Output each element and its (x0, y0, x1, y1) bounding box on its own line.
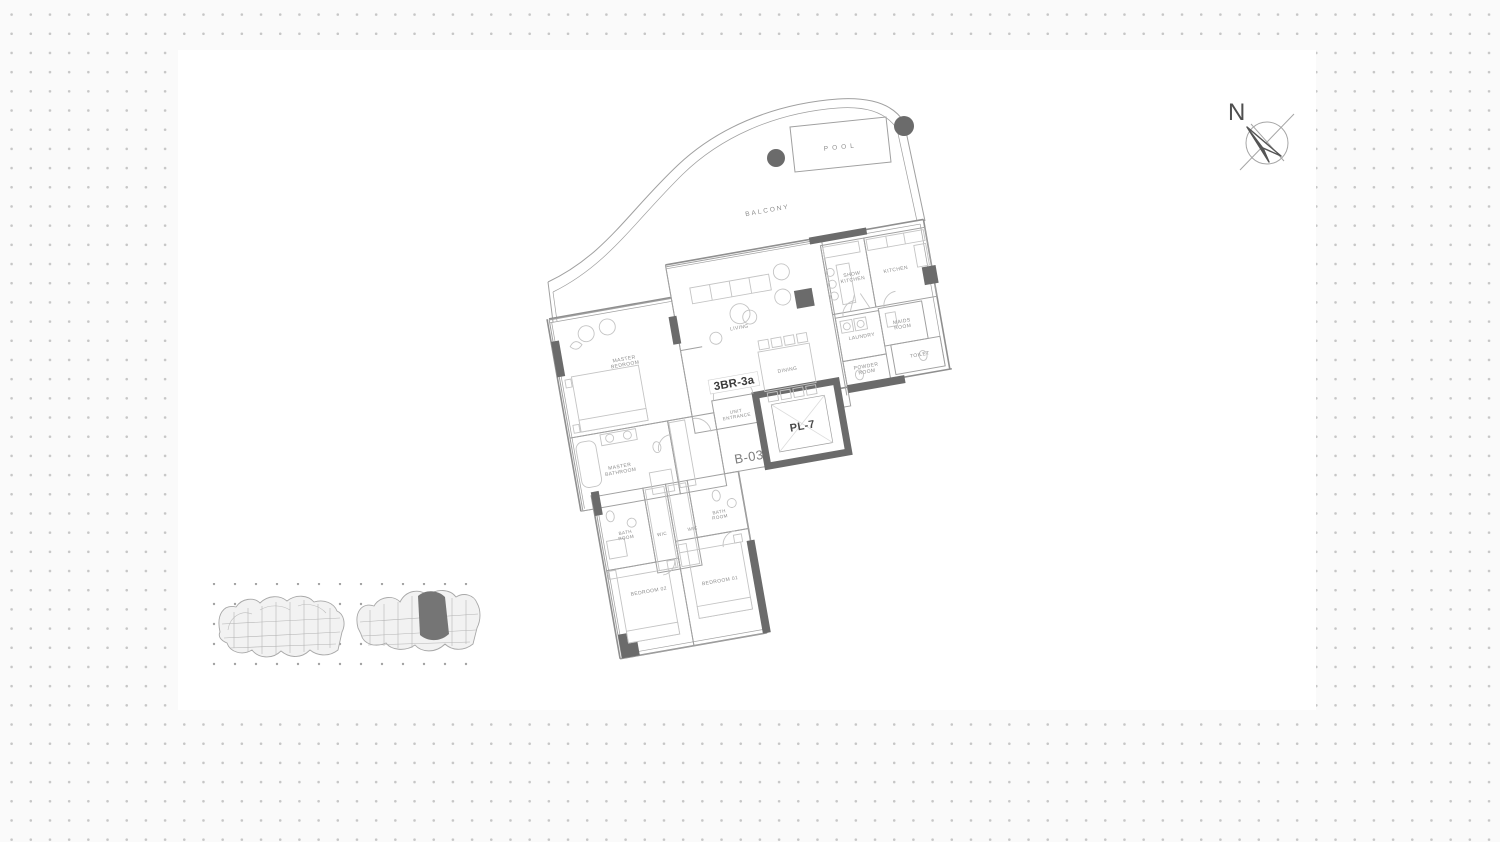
compass: N (1228, 99, 1294, 170)
label-master-bedroom: MASTERBEDROOM (610, 354, 640, 370)
label-bedroom-01: BEDROOM 01 (702, 575, 739, 587)
living-furniture (688, 263, 799, 348)
pool-label: POOL (824, 142, 859, 153)
label-kitchen: KITCHEN (883, 265, 908, 275)
label-laundry: LAUNDRY (848, 332, 876, 343)
label-living: LIVING (730, 323, 750, 332)
balcony-column (894, 116, 914, 136)
label-show-kitchen: SHOWKITCHEN (839, 270, 865, 286)
label-bathroom-1: BATHROOM (711, 508, 728, 521)
label-bedroom-02: BEDROOM 02 (630, 586, 667, 598)
label-unit-entrance: UNITENTRANCE (721, 406, 751, 421)
balcony-outline (548, 99, 925, 322)
label-wic-2: WIC (657, 531, 668, 538)
compass-north-label: N (1228, 99, 1245, 126)
label-wic-1: WIC (687, 525, 698, 532)
floor-plan-drawing: POOL (0, 0, 1500, 842)
label-bathroom-2: BATHROOM (617, 529, 634, 542)
label-powder-room: POWDERROOM (853, 361, 880, 377)
balcony-label: BALCONY (745, 203, 791, 218)
master-bedroom-furniture (556, 315, 648, 433)
label-dining: DINING (777, 366, 798, 375)
unit-plan: MASTERBEDROOM MASTERBATHROOM LIVING DINI… (535, 180, 994, 661)
site-unit-highlight (418, 591, 449, 640)
site-key-plan (212, 583, 480, 675)
unit-type-label: 3BR-3a (713, 374, 756, 393)
unit-number: B-03 (733, 447, 765, 467)
wing-fixtures (595, 475, 757, 645)
label-maids-room: MAIDSROOM (893, 317, 913, 332)
pool: POOL (790, 117, 891, 172)
balcony-column (767, 149, 785, 167)
site-building-left (219, 596, 344, 657)
label-master-bathroom: MASTERBATHROOM (604, 461, 637, 478)
room-master-closet (668, 413, 727, 494)
